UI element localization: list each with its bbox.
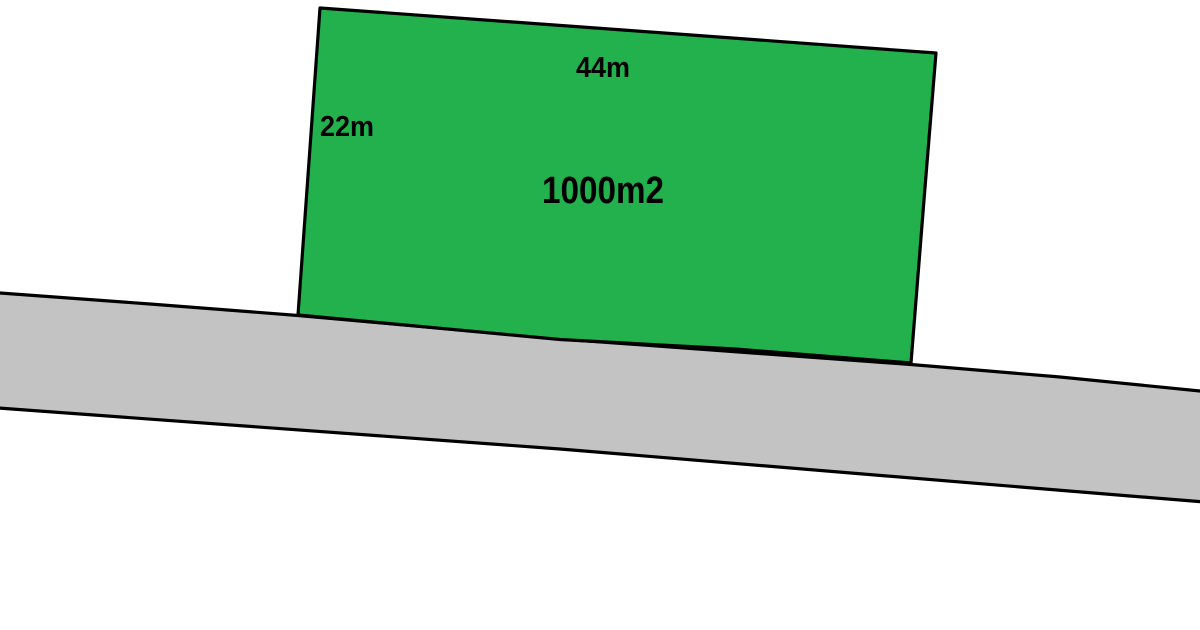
svg-text:1000m2: 1000m2 — [542, 170, 664, 212]
svg-text:22m: 22m — [320, 111, 374, 143]
svg-text:44m: 44m — [576, 52, 630, 84]
